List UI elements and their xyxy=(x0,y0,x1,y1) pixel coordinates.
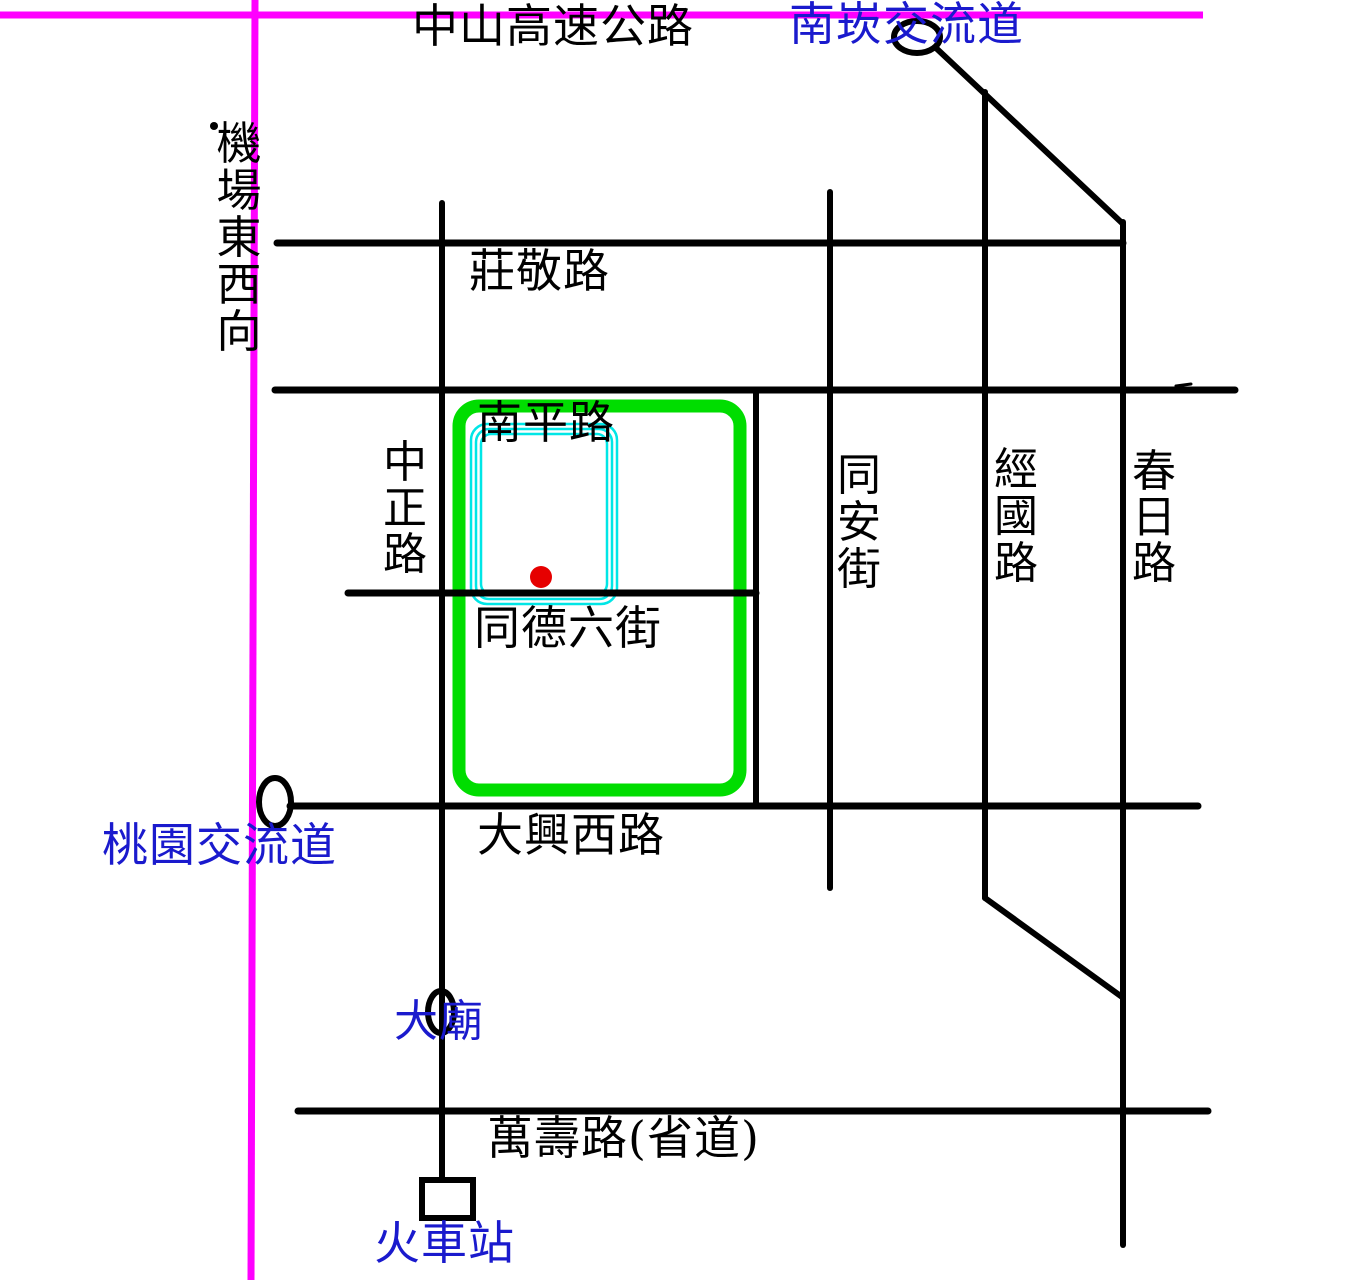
road-lines xyxy=(275,48,1235,1245)
label-nankan-interchange: 南崁交流道 xyxy=(789,0,1024,48)
label-temple: 大廟 xyxy=(394,999,484,1045)
map-drawing-layer xyxy=(0,0,1353,1280)
ramp-nankan-diagonal xyxy=(936,48,1122,223)
label-street-tongde6: 同德六街 xyxy=(474,604,662,652)
train-station-box xyxy=(422,1180,473,1218)
label-street-tongan: 同安街 xyxy=(834,452,884,593)
label-road-chunri: 春日路 xyxy=(1129,449,1179,587)
hand-drawn-road-map: 中山高速公路 南崁交流道 機場東西向 莊敬路 南平路 中正路 同德六街 同安街 … xyxy=(0,0,1353,1280)
label-road-jingguo: 經國路 xyxy=(991,446,1041,587)
label-train-station: 火車站 xyxy=(374,1219,515,1267)
label-airport-east-west: 機場東西向 xyxy=(214,120,264,355)
label-freeway-zhongshan: 中山高速公路 xyxy=(412,2,694,50)
ramp-jingguo-diagonal xyxy=(985,898,1122,997)
label-road-wanshou: 萬壽路(省道) xyxy=(487,1114,760,1162)
location-marker-red-dot xyxy=(530,566,552,588)
label-road-zhuangjing: 莊敬路 xyxy=(469,247,610,295)
label-taoyuan-interchange: 桃園交流道 xyxy=(102,821,337,869)
label-road-nanping: 南平路 xyxy=(477,399,615,446)
label-road-daxing-west: 大興西路 xyxy=(477,811,665,859)
label-road-zhongzheng: 中正路 xyxy=(380,440,430,578)
stray-mark xyxy=(1176,384,1191,386)
